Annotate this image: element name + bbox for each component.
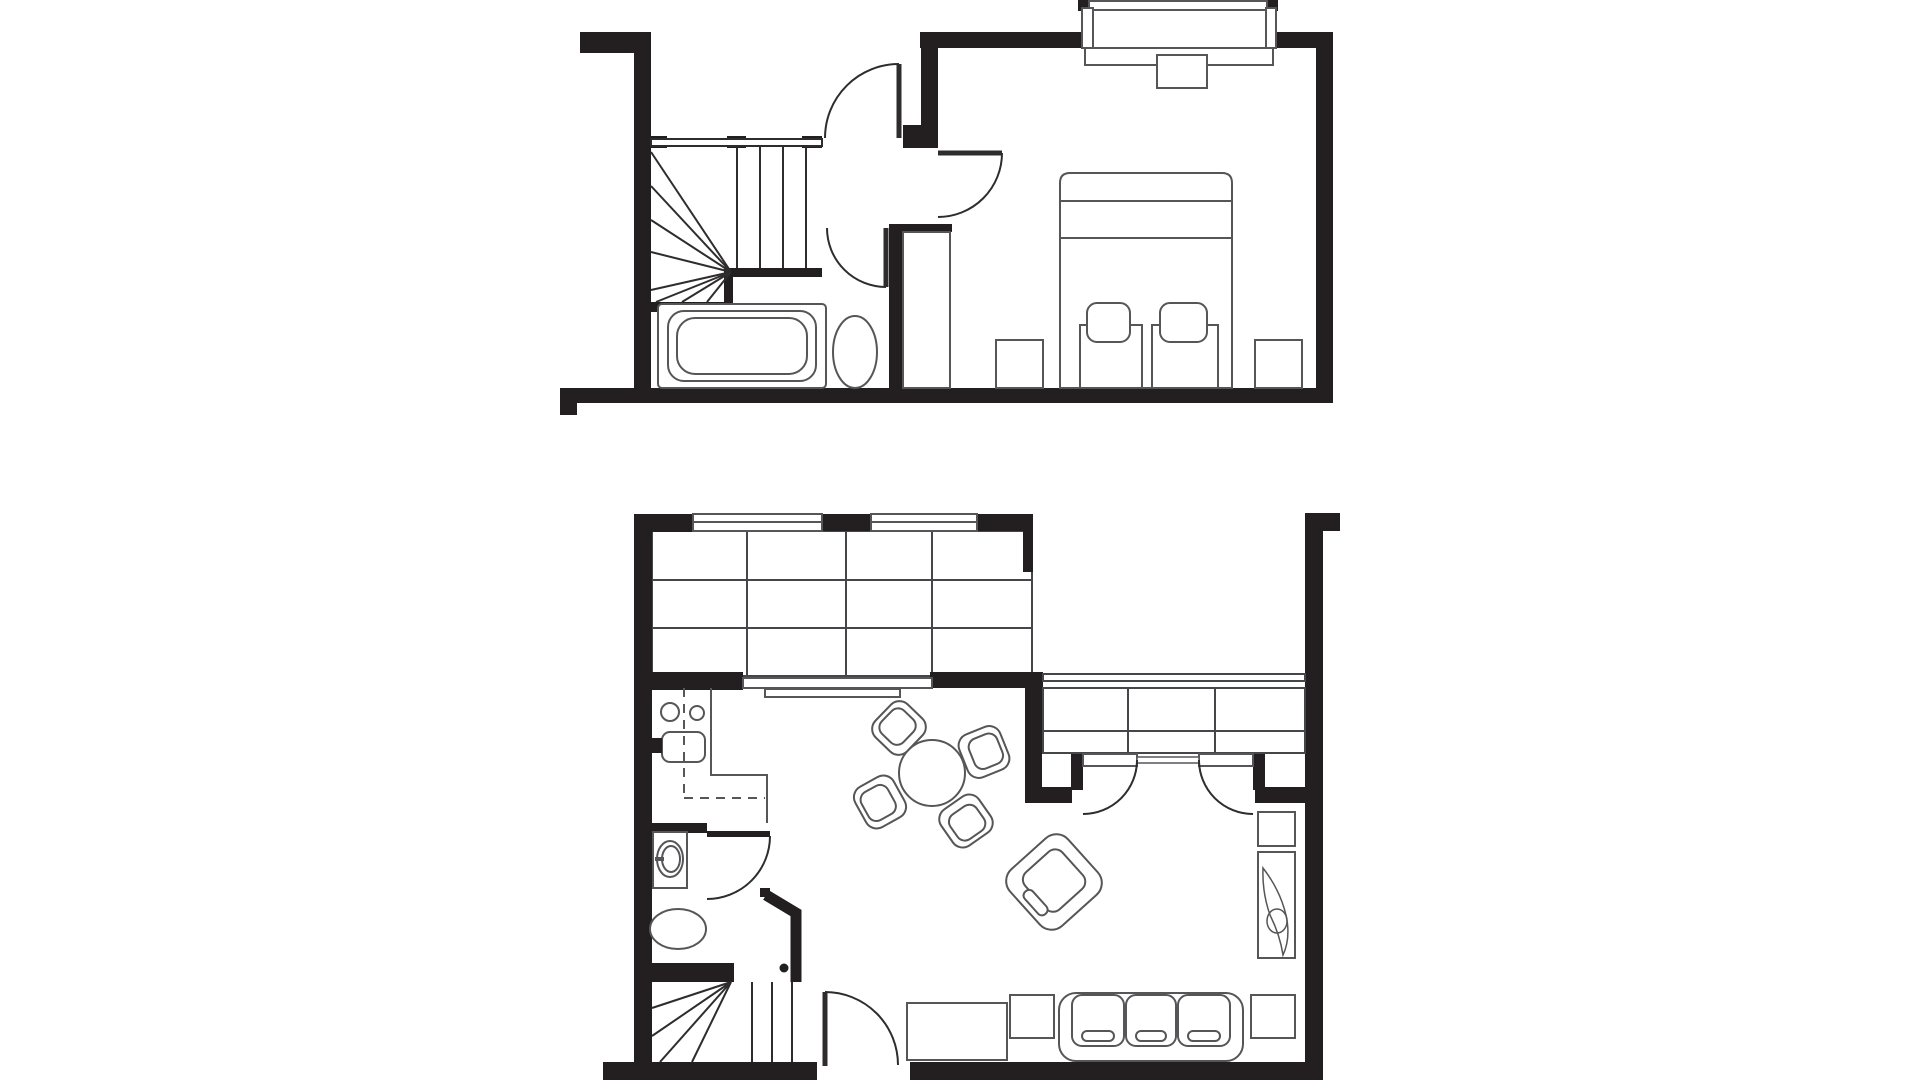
wall-bottom — [560, 388, 1333, 403]
sofa-cushion-pill — [1082, 1031, 1114, 1041]
wall-bottom-right — [910, 1062, 1323, 1080]
french-door-astragal — [1137, 757, 1199, 763]
right-wall-furniture — [1258, 812, 1295, 958]
bedroom-furniture — [996, 173, 1302, 388]
french-door-post-right — [1253, 752, 1265, 790]
toilet — [833, 316, 877, 388]
sofa-side-cushion-right — [1251, 995, 1295, 1038]
french-doors — [1083, 754, 1253, 814]
entry-door — [825, 992, 898, 1066]
ground-staircase — [652, 982, 792, 1062]
french-door-swing-left — [1083, 760, 1137, 814]
tv-stand — [907, 1003, 1007, 1060]
kitchen-grid-outline — [652, 531, 1032, 676]
closet-wall-top — [889, 224, 952, 232]
dining-set — [850, 696, 1013, 852]
french-door-leaf-left — [1083, 754, 1137, 766]
nightstand-right — [1255, 340, 1302, 388]
wall-top-descender — [1023, 514, 1033, 572]
bathtub-inner — [677, 318, 807, 374]
window-pier — [822, 514, 871, 531]
counter-front-shelf — [765, 689, 900, 697]
window-seat-back-rail — [1043, 674, 1305, 681]
closet-wall-left — [889, 224, 903, 390]
stair-enclosure-top — [652, 963, 734, 982]
floor-plan-drawing — [0, 0, 1920, 1080]
french-door-post-left — [1071, 752, 1083, 790]
bedroom-door-swing — [938, 153, 1002, 217]
entry-door-swing — [825, 992, 898, 1065]
upper-bathroom — [658, 304, 877, 388]
counter-front-edge — [743, 678, 932, 688]
sofa-cushion-pill — [1188, 1031, 1220, 1041]
pillow-left — [1087, 303, 1130, 342]
bay-window-frame-left — [1082, 8, 1093, 48]
wall-bottom-left-foot — [560, 388, 577, 415]
landing-rail — [651, 139, 822, 146]
kitchen-wall-bottom-right — [930, 672, 1043, 688]
wall-left — [634, 32, 651, 403]
upper-floor-plan — [560, 0, 1333, 415]
radiator — [1157, 55, 1207, 88]
wall-inner-foot — [903, 125, 938, 148]
counter-front — [743, 678, 932, 697]
winder-tread — [692, 982, 731, 1062]
ground-floor-plan — [603, 513, 1340, 1080]
sofa-cushion-pill — [1136, 1031, 1166, 1041]
utility-counter-edge — [711, 688, 767, 823]
wc-toilet — [650, 909, 706, 949]
utility-nook — [652, 688, 767, 823]
wall-top-a — [920, 32, 1084, 48]
landing-door-swing — [825, 64, 899, 138]
floor-plan-page — [0, 0, 1920, 1080]
stair-edge-horizontal — [731, 268, 822, 277]
sofa-side-cushion-left — [1010, 995, 1054, 1038]
bay-window-glazing — [1089, 1, 1267, 10]
wc-basin-inner — [662, 846, 680, 872]
armchair — [1000, 828, 1109, 937]
wall-left — [634, 514, 652, 1063]
utility-bowl-large — [661, 703, 679, 721]
jog-wall-east-right — [1255, 787, 1305, 803]
wall-bottom-left — [603, 1062, 817, 1080]
utility-bowl-small — [690, 706, 704, 720]
bathroom-door-swing — [827, 228, 886, 287]
winder-tread — [651, 186, 731, 272]
side-table — [1258, 812, 1295, 846]
utility-tap — [652, 738, 662, 753]
kitchen-wall-bottom-left — [634, 672, 743, 690]
jog-wall-vertical-left — [1025, 688, 1042, 803]
window-seat-unit — [1043, 674, 1305, 753]
upper-staircase — [651, 139, 822, 302]
wall-top-b — [1273, 32, 1333, 48]
wc-door-leaf — [707, 831, 770, 837]
door-stop-dot — [780, 964, 789, 973]
french-door-swing-right — [1199, 760, 1253, 814]
wall-top-left-block — [634, 514, 693, 532]
pillow-right — [1160, 303, 1207, 342]
bay-window — [1082, 1, 1276, 88]
nightstand-left — [996, 340, 1043, 388]
wall-right — [1316, 32, 1333, 395]
jog-wall-east-left — [1042, 787, 1072, 803]
french-door-leaf-right — [1199, 754, 1253, 766]
built-in-closet — [903, 232, 950, 388]
bay-window-frame-right — [1266, 8, 1276, 48]
sofa-group — [907, 993, 1295, 1061]
window-seat-body — [1043, 688, 1305, 753]
kitchen-cabinet-grid — [652, 531, 1032, 676]
wall-right — [1305, 513, 1323, 1080]
